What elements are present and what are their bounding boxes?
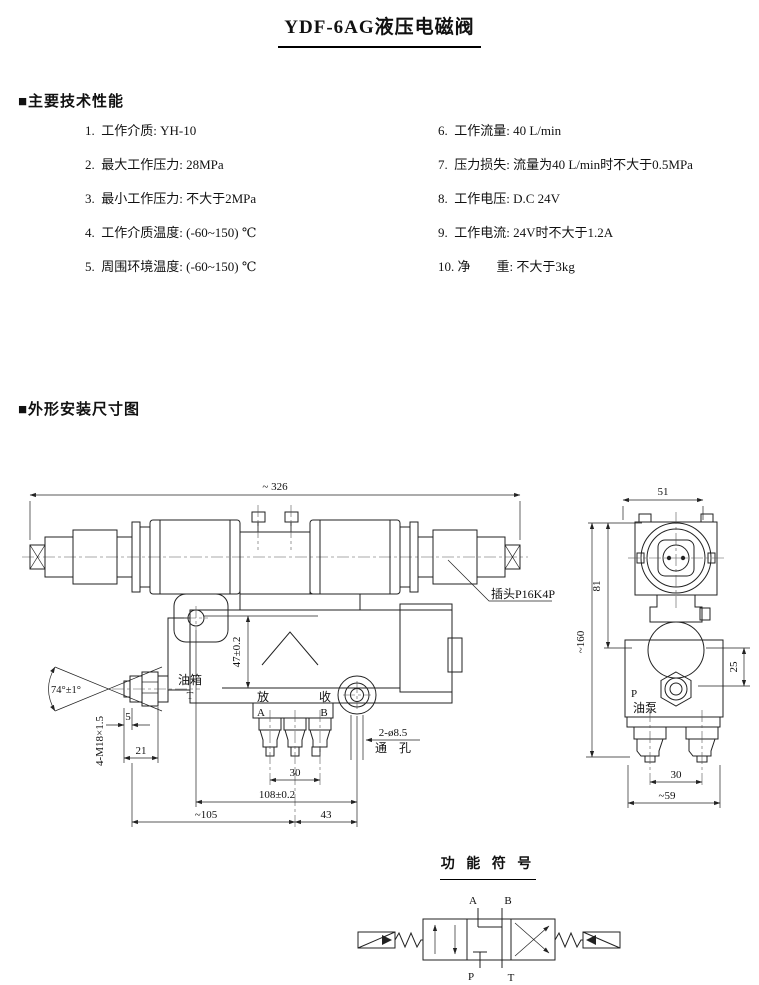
section-heading-outline: ■外形安装尺寸图 xyxy=(18,398,140,419)
dim-label-81: 81 xyxy=(591,581,603,592)
solenoid-right-symbol xyxy=(583,932,620,948)
port-label-p: P xyxy=(631,688,637,700)
dim-label-5: 5 xyxy=(125,711,131,723)
spec-item-10: 10. 净 重: 不大于3kg xyxy=(438,260,759,273)
solenoid-left-symbol xyxy=(358,932,395,948)
spec-item-6: 6. 工作流量: 40 L/min xyxy=(438,124,759,137)
spring-right xyxy=(555,933,583,947)
valve-envelope xyxy=(423,919,555,960)
port-label-t: T xyxy=(187,690,194,702)
side-labels: P 油泵 xyxy=(631,688,657,715)
label-pump: 油泵 xyxy=(633,701,657,715)
side-dimensions: 51 81 ~160 25 30 ~59 xyxy=(575,486,750,808)
side-view: P 油泵 51 81 ~160 25 30 ~59 xyxy=(575,486,750,808)
spec-item-8: 8. 工作电压: D.C 24V xyxy=(438,192,759,205)
dim-label-108: 108±0.2 xyxy=(259,789,295,801)
symbol-port-a: A xyxy=(469,895,477,907)
label-hole-spec: 2-ø8.5 xyxy=(379,727,408,739)
label-tank: 油箱 xyxy=(178,672,202,687)
label-collect: 收 xyxy=(319,690,331,704)
symbol-port-p: P xyxy=(468,971,474,983)
dim-label-30: 30 xyxy=(290,767,302,779)
dim-label-43: 43 xyxy=(321,809,333,821)
title-area: YDF-6AG液压电磁阀 xyxy=(0,12,759,48)
front-bottom-ports xyxy=(253,703,363,827)
spec-item-5: 5. 周围环境温度: (-60~150) ℃ xyxy=(85,260,445,273)
dim-label-25: 25 xyxy=(728,661,740,673)
symbol-heading: 功 能 符 号 xyxy=(440,853,536,880)
dim-label-160: ~160 xyxy=(575,630,587,653)
section-heading-specs: ■主要技术性能 xyxy=(18,90,124,111)
spec-item-4: 4. 工作介质温度: (-60~150) ℃ xyxy=(85,226,445,239)
function-symbol-schematic: A B P T xyxy=(330,890,660,985)
spec-item-7: 7. 压力损失: 流量为40 L/min时不大于0.5MPa xyxy=(438,158,759,171)
spec-list-right: 6. 工作流量: 40 L/min 7. 压力损失: 流量为40 L/min时不… xyxy=(438,124,759,294)
port-label-b: B xyxy=(320,707,327,719)
label-hole-spec-2: 通 孔 xyxy=(375,741,411,755)
spec-item-2: 2. 最大工作压力: 28MPa xyxy=(85,158,445,171)
symbol-port-b: B xyxy=(504,895,511,907)
front-center-body xyxy=(240,505,310,594)
valve-position-left xyxy=(435,925,455,954)
dim-label-47: 47±0.2 xyxy=(231,637,243,668)
label-plug: 插头P16K4P xyxy=(491,587,555,601)
dim-label-21: 21 xyxy=(136,745,147,757)
dim-label-angle: 74°±1° xyxy=(51,685,81,696)
valve-position-right xyxy=(515,923,549,956)
front-manifold-body xyxy=(168,594,462,714)
dim-label-total-width: ~ 326 xyxy=(262,481,288,493)
dim-label-105: ~105 xyxy=(195,809,218,821)
spring-left xyxy=(395,933,423,947)
port-label-a: A xyxy=(257,707,265,719)
dim-label-51: 51 xyxy=(658,486,669,498)
dim-label-59: ~59 xyxy=(659,790,676,802)
page-title: YDF-6AG液压电磁阀 xyxy=(278,12,480,48)
spec-item-3: 3. 最小工作压力: 不大于2MPa xyxy=(85,192,445,205)
label-release: 放 xyxy=(257,689,269,704)
dim-label-30-side: 30 xyxy=(671,769,683,781)
outline-drawing: ~ 326 插头P16K4P 47±0.2 油箱 T 放 A 收 B 2-ø8.… xyxy=(0,460,759,840)
spec-item-1: 1. 工作介质: YH-10 xyxy=(85,124,445,137)
spec-list-left: 1. 工作介质: YH-10 2. 最大工作压力: 28MPa 3. 最小工作压… xyxy=(85,124,445,294)
symbol-port-t: T xyxy=(508,972,515,984)
spec-item-9: 9. 工作电流: 24V时不大于1.2A xyxy=(438,226,759,239)
label-thread-spec: 4-M18×1.5 xyxy=(94,716,106,766)
front-view: ~ 326 插头P16K4P 47±0.2 油箱 T 放 A 收 B 2-ø8.… xyxy=(22,481,555,827)
side-solenoid-face xyxy=(628,512,724,608)
valve-position-center xyxy=(473,908,502,968)
